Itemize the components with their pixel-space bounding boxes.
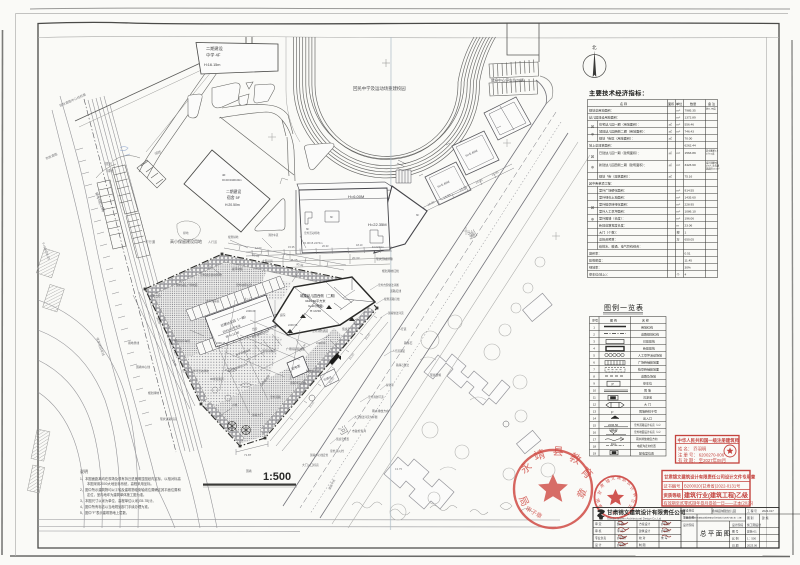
svg-text:规划道路红线: 规划道路红线 <box>384 297 400 301</box>
svg-text:1、本图面距离均在现场及现有拆迁进度明显图纸内定标，以相对标: 1、本图面距离均在现场及现有拆迁进度明显图纸内定标，以相对标高 <box>80 476 181 481</box>
svg-text:有 效 期： 至2027年08月: 有 效 期： 至2027年08月 <box>678 457 726 464</box>
svg-text:围 墙: 围 墙 <box>644 388 651 393</box>
svg-text:总投资预算：: 总投资预算： <box>599 237 618 242</box>
svg-text:停车位: 停车位 <box>643 381 652 386</box>
svg-text:室外道路: 室外道路 <box>270 395 281 399</box>
svg-text:广场砖铺装地面: 广场砖铺装地面 <box>286 347 305 351</box>
svg-text:30米直跑道: 30米直跑道 <box>210 377 224 381</box>
svg-text:20.33: 20.33 <box>352 256 360 260</box>
svg-text:F=2234m: F=2234m <box>372 245 385 249</box>
svg-text:名 称: 名 称 <box>642 318 649 323</box>
svg-text:值班室位置: 值班室位置 <box>336 437 349 441</box>
svg-text:B200020(甘肃省)2022-0131号: B200020(甘肃省)2022-0131号 <box>684 483 740 490</box>
svg-text:2296.58: 2296.58 <box>288 323 298 327</box>
svg-text:m²: m² <box>677 123 681 127</box>
svg-text:m²: m² <box>677 217 681 221</box>
svg-text:数量: 数量 <box>690 101 696 106</box>
svg-text:名 称: 名 称 <box>620 101 627 106</box>
svg-text:围墙大门: 围墙大门 <box>252 413 263 417</box>
svg-text:樘: 樘 <box>677 230 680 235</box>
svg-text:现状建筑: 现状建筑 <box>430 373 441 377</box>
svg-text:配电室位置: 配电室位置 <box>639 451 654 456</box>
svg-text:196.06: 196.06 <box>685 217 695 221</box>
svg-text:新建幼儿园西侧二期（建筑面积）：: 新建幼儿园西侧二期（建筑面积）： <box>599 162 647 167</box>
svg-text:室外活动场地: 室外活动场地 <box>304 231 320 235</box>
svg-text:个: 个 <box>677 273 680 277</box>
svg-text:住宅幼儿园一期（用地面积）：: 住宅幼儿园一期（用地面积）： <box>599 122 641 127</box>
svg-text:H:16.15m: H:16.15m <box>204 63 220 67</box>
svg-text:资质等级: 资质等级 <box>664 492 682 499</box>
svg-text:4: 4 <box>685 273 687 277</box>
svg-text:14: 14 <box>593 417 597 421</box>
svg-text:庭院: 庭院 <box>280 313 286 317</box>
svg-text:化粪池位置: 化粪池位置 <box>306 369 320 373</box>
svg-text:m²: m² <box>677 163 681 167</box>
svg-text:建设单位: 建设单位 <box>683 509 694 513</box>
svg-text:规划「街（建筑面积）：: 规划「街（建筑面积）： <box>599 174 631 179</box>
svg-text:植草砖铺装地面: 植草砖铺装地面 <box>638 367 659 372</box>
svg-text:用地界线: 用地界线 <box>128 341 139 345</box>
svg-text:规划「街区（用地面积）：: 规划「街区（用地面积）： <box>599 136 635 141</box>
svg-text:2、图中所示建筑物均以②轴及建筑物临街轴线位置确定其平面位置: 2、图中所示建筑物均以②轴及建筑物临街轴线位置确定其平面位置和 <box>80 487 181 492</box>
svg-text:本图采用2000大地坐标系统，高程采用坐标。: 本图采用2000大地坐标系统，高程采用坐标。 <box>87 481 154 486</box>
svg-text:3423.60: 3423.60 <box>685 163 696 167</box>
svg-text:消防车道: 消防车道 <box>268 233 279 237</box>
svg-text:70.00: 70.00 <box>685 137 693 141</box>
svg-text:DLG: DLG <box>611 442 616 446</box>
svg-text:15: 15 <box>593 424 597 428</box>
svg-text:4F: 4F <box>222 173 226 177</box>
svg-text:北: 北 <box>592 44 597 51</box>
svg-text:方案设计: 方案设计 <box>639 522 650 526</box>
svg-text:1563.89: 1563.89 <box>685 151 696 155</box>
svg-text:序号: 序号 <box>592 318 598 323</box>
svg-text:室外道路设计标高（m）: 室外道路设计标高（m） <box>634 423 662 427</box>
svg-text:室外围墙（长度）：: 室外围墙（长度）： <box>599 216 625 221</box>
svg-text:3+1F(局部): 3+1F(局部) <box>308 303 323 308</box>
svg-text:6F: 6F <box>416 213 420 217</box>
svg-text:15.35: 15.35 <box>288 245 295 249</box>
svg-text:规划: 规划 <box>105 161 112 166</box>
svg-text:甘肃锦文建筑设计有限责任公司设计文件专用章: 甘肃锦文建筑设计有限责任公司设计文件专用章 <box>664 474 756 481</box>
svg-text:图 别: 图 别 <box>747 516 754 520</box>
svg-text:给排水、暖通、电气管线综合：: 给排水、暖通、电气管线综合： <box>599 244 642 249</box>
svg-text:m: m <box>677 224 680 228</box>
svg-text:1086.10: 1086.10 <box>685 210 696 214</box>
svg-text:设 计: 设 计 <box>595 543 602 547</box>
svg-text:H=22.35M: H=22.35M <box>368 222 387 227</box>
svg-text:1435.60: 1435.60 <box>685 196 696 200</box>
svg-text:绿地: 绿地 <box>183 231 189 235</box>
svg-text:施工图设计: 施工图设计 <box>747 523 761 527</box>
svg-text:2296.60: 2296.60 <box>246 309 256 313</box>
svg-text:19: 19 <box>593 452 597 456</box>
svg-text:停车位(地上)：: 停车位(地上)： <box>589 272 610 277</box>
svg-text:比 例: 比 例 <box>732 537 739 541</box>
svg-text:审 定: 审 定 <box>595 522 602 526</box>
svg-text:甘肃锦文建筑设计有限责任公司: 甘肃锦文建筑设计有限责任公司 <box>607 509 686 517</box>
svg-text:H:13.50: H:13.50 <box>310 309 321 313</box>
svg-text:18.10: 18.10 <box>356 243 363 247</box>
svg-text:植草砖停车位: 植草砖停车位 <box>174 339 190 343</box>
svg-text:中学 4F: 中学 4F <box>206 52 221 59</box>
svg-text:室外台阶: 室外台阶 <box>150 294 161 298</box>
svg-text:71.87: 71.87 <box>244 453 252 457</box>
svg-text:m²: m² <box>677 189 681 193</box>
svg-text:室外植草砖绿化面积：: 室外植草砖绿化面积： <box>599 202 630 207</box>
svg-text:绿地率：: 绿地率： <box>589 265 601 270</box>
svg-text:雨水排放方向: 雨水排放方向 <box>372 409 389 413</box>
svg-text:围墙详见大样: 围墙详见大样 <box>290 381 306 385</box>
svg-text:主入口: 主入口 <box>244 297 252 301</box>
svg-text:道路红线: 道路红线 <box>390 289 401 293</box>
svg-text:绿化带: 绿化带 <box>386 383 394 387</box>
svg-text:万: 万 <box>677 238 680 242</box>
svg-text:17: 17 <box>593 438 597 442</box>
svg-text:地上总建筑面积：: 地上总建筑面积： <box>589 143 614 148</box>
svg-text:设计阶段: 设计阶段 <box>732 523 743 527</box>
svg-text:±0.00=1900.00m: ±0.00=1900.00m <box>222 178 242 182</box>
svg-text:大门入口标高: 大门入口标高 <box>302 463 319 467</box>
svg-text:用地红线: 用地红线 <box>641 325 653 330</box>
svg-text:有效期至贰零贰捌年叁月叁拾一日——正本(2025): 有效期至贰零贰捌年叁月叁拾一日——正本(2025) <box>664 500 754 506</box>
svg-text:图 例: 图 例 <box>610 318 617 323</box>
svg-text:建筑设计: 建筑设计 <box>639 529 650 533</box>
svg-text:审 核: 审 核 <box>595 529 602 533</box>
svg-text:围墙做法详见: 围墙做法详见 <box>388 311 404 315</box>
svg-text:m²: m² <box>677 109 681 113</box>
svg-text:制 图: 制 图 <box>639 543 646 547</box>
svg-text:1372.89: 1372.89 <box>685 116 696 120</box>
svg-text:二期建设: 二期建设 <box>206 45 224 52</box>
svg-text:幼儿园建设用地面积：: 幼儿园建设用地面积： <box>589 115 620 120</box>
svg-text:现状道路标高: 现状道路标高 <box>160 417 177 421</box>
svg-text:5、图中"F"表示建筑物地上层数。: 5、图中"F"表示建筑物地上层数。 <box>80 510 129 515</box>
svg-text:值班室: 值班室 <box>342 327 350 331</box>
svg-text:县: 县 <box>552 445 564 459</box>
svg-text:围墙中心线: 围墙中心线 <box>136 365 150 369</box>
svg-text:人行道铺装: 人行道铺装 <box>392 349 405 353</box>
svg-text:围墙砖柱子号: 围墙砖柱子号 <box>639 409 657 414</box>
svg-text:H=6.00M: H=6.00M <box>348 194 364 199</box>
svg-text:6F: 6F <box>306 227 310 231</box>
svg-text:大 门: 大 门 <box>644 402 651 407</box>
svg-text:中: 中 <box>591 165 594 170</box>
svg-text:其: 其 <box>591 206 594 210</box>
svg-text:单位: 单位 <box>676 101 682 106</box>
svg-text:路缘石: 路缘石 <box>404 341 413 345</box>
svg-text:16: 16 <box>593 431 597 435</box>
svg-text:规划绿地: 规划绿地 <box>148 391 159 395</box>
svg-text:4、图中所有标志以当地规划部门手续办理为准。: 4、图中所有标志以当地规划部门手续办理为准。 <box>80 504 151 509</box>
svg-text:建筑行业(建筑工程)乙级: 建筑行业(建筑工程)乙级 <box>684 492 748 500</box>
svg-text:H:20.50m: H:20.50m <box>225 203 240 207</box>
svg-text:现状围墙拆除: 现状围墙拆除 <box>376 257 393 261</box>
svg-text:绿地铺装广场地面: 绿地铺装广场地面 <box>176 283 198 287</box>
svg-text:室外消防环道: 室外消防环道 <box>368 395 384 399</box>
svg-text:228.95: 228.95 <box>685 203 695 207</box>
svg-text:容积率：: 容积率： <box>589 251 601 256</box>
svg-text:13: 13 <box>593 410 597 414</box>
svg-text:证书编号: 证书编号 <box>664 483 681 490</box>
svg-text:回民中学及运动场重建校园: 回民中学及运动场重建校园 <box>353 85 406 92</box>
svg-text:12: 12 <box>593 403 597 407</box>
svg-text:室外人工草坪活动场地: 室外人工草坪活动场地 <box>182 369 209 373</box>
svg-text:11.45: 11.45 <box>685 259 693 263</box>
svg-text:围墙中心线定位: 围墙中心线定位 <box>310 453 329 457</box>
svg-text:建施-01: 建施-01 <box>747 530 757 534</box>
svg-text:650.05: 650.05 <box>685 238 695 242</box>
svg-text:主要技术经济指标：: 主要技术经济指标： <box>589 90 648 98</box>
svg-text:中: 中 <box>591 217 594 222</box>
svg-text:建 施: 建 施 <box>762 516 769 520</box>
svg-text:朱 军: 朱 军 <box>661 536 668 540</box>
svg-text:设计阶段: 设计阶段 <box>683 523 694 527</box>
svg-text:10: 10 <box>593 389 597 393</box>
svg-text:其: 其 <box>591 155 594 159</box>
svg-text:1:500: 1:500 <box>263 471 291 483</box>
svg-text:7985.35: 7985.35 <box>685 109 696 113</box>
svg-text:定位，室内地坪为建筑单体施工图为准。: 定位，室内地坪为建筑单体施工图为准。 <box>87 492 146 497</box>
svg-text:室外健身器材场地: 室外健身器材场地 <box>200 273 222 277</box>
svg-text:车行道: 车行道 <box>145 239 156 244</box>
svg-text:新建道路宽度长度：: 新建道路宽度长度： <box>599 223 627 228</box>
svg-text:室外地坪标高: 室外地坪标高 <box>236 283 252 287</box>
svg-text:13.75: 13.75 <box>395 467 402 471</box>
svg-text:室外广场硬化面积：: 室外广场硬化面积： <box>599 188 627 193</box>
svg-text:围墙: 围墙 <box>246 469 252 473</box>
svg-text:18: 18 <box>593 445 597 449</box>
svg-text:m²: m² <box>677 130 681 134</box>
svg-text:2023.06: 2023.06 <box>747 544 758 548</box>
svg-text:20.33: 20.33 <box>322 244 329 248</box>
svg-text:m²: m² <box>677 203 681 207</box>
svg-text:0.51: 0.51 <box>685 252 691 256</box>
svg-text:室外绿化土地面积：: 室外绿化土地面积： <box>599 195 627 200</box>
svg-text:大门做法详见大样图: 大门做法详见大样图 <box>354 415 378 419</box>
svg-text:健身中心停车位20辆: 健身中心停车位20辆 <box>491 78 524 83</box>
svg-text:人行道: 人行道 <box>208 239 217 244</box>
svg-text:建筑密度：: 建筑密度： <box>589 258 604 263</box>
svg-text:城建幼儿园西侧（二期）: 城建幼儿园西侧（二期） <box>300 293 337 298</box>
svg-text:姓 名： 乔羽明: 姓 名： 乔羽明 <box>678 446 706 453</box>
svg-text:规划总用地面积：: 规划总用地面积： <box>589 108 614 113</box>
svg-text:914.55: 914.55 <box>685 189 695 193</box>
svg-text:电缆沟走向位置: 电缆沟走向位置 <box>637 444 656 448</box>
svg-text:台阶: 台阶 <box>252 327 258 331</box>
svg-text:3423.60平方米: 3423.60平方米 <box>305 298 325 303</box>
svg-text:556.46: 556.46 <box>685 123 695 127</box>
svg-text:二期建设: 二期建设 <box>226 189 241 194</box>
svg-text:无障碍坡道: 无障碍坡道 <box>262 349 276 353</box>
svg-text:宿舍 5F: 宿舍 5F <box>227 195 241 200</box>
svg-text:道路及场地: 道路及场地 <box>641 374 656 379</box>
svg-text:人行道: 人行道 <box>398 327 407 331</box>
svg-text:总平面图: 总平面图 <box>700 529 732 538</box>
svg-text:室外台阶做法详图: 室外台阶做法详图 <box>378 283 399 287</box>
svg-text:规划用地红线: 规划用地红线 <box>382 269 399 273</box>
svg-text:11: 11 <box>593 396 596 400</box>
svg-text:嵌草砖铺装: 嵌草砖铺装 <box>206 299 220 303</box>
svg-text:m²: m² <box>677 210 681 214</box>
svg-text:其: 其 <box>591 125 594 129</box>
svg-text:雨水排放坡度方向: 雨水排放坡度方向 <box>636 437 658 441</box>
svg-text:说明: 说明 <box>80 468 88 474</box>
svg-text:图 号: 图 号 <box>732 530 739 534</box>
svg-text:2296.45: 2296.45 <box>216 341 226 345</box>
svg-text:3、本图尺寸以米为单位，高程单位以米(G5-78)计。: 3、本图尺寸以米为单位，高程单位以米(G5-78)计。 <box>80 498 156 503</box>
svg-text:m²: m² <box>677 116 681 120</box>
svg-text:城建幼儿园西侧二期（用地面积）：: 城建幼儿园西侧二期（用地面积）： <box>599 129 647 134</box>
svg-text:2296.56: 2296.56 <box>608 423 619 427</box>
svg-text:其中各单项工程：: 其中各单项工程： <box>589 181 614 186</box>
svg-text:1: 1 <box>685 231 687 235</box>
svg-text:±0.00=8.2476m: ±0.00=8.2476m <box>303 241 323 245</box>
svg-text:大型玩具: 大型玩具 <box>262 259 273 263</box>
svg-text:室外地面设计标高（m）: 室外地面设计标高（m） <box>634 430 662 434</box>
svg-text:30%: 30% <box>685 266 691 270</box>
svg-text:m²: m² <box>677 196 681 200</box>
svg-text:校 对: 校 对 <box>639 536 646 540</box>
svg-text:人工草坪活动场地: 人工草坪活动场地 <box>638 353 662 358</box>
svg-text:已建建筑: 已建建筑 <box>643 339 655 344</box>
svg-text:广场砖铺装地面: 广场砖铺装地面 <box>638 360 659 365</box>
svg-text:中华人民共和国一级注册建筑师: 中华人民共和国一级注册建筑师 <box>678 437 740 444</box>
svg-text:室外消防通道: 室外消防通道 <box>312 329 328 333</box>
svg-text:大门（个数）：: 大门（个数）： <box>599 230 619 235</box>
svg-text:工 程 号: 工 程 号 <box>747 509 757 513</box>
svg-text:专业负责: 专业负责 <box>595 536 606 540</box>
svg-text:12.00: 12.00 <box>255 246 262 250</box>
svg-text:746.43: 746.43 <box>685 130 695 134</box>
svg-text:路缘石做法: 路缘石做法 <box>396 363 409 367</box>
svg-text:市政检查井: 市政检查井 <box>352 429 366 433</box>
svg-text:已建幼儿园一期（建筑面积）：: 已建幼儿园一期（建筑面积）： <box>599 150 641 155</box>
svg-text:高小保留建设用地: 高小保留建设用地 <box>170 238 202 244</box>
svg-text:悬浮地板: 悬浮地板 <box>232 267 243 271</box>
svg-text:永靖县城建幼儿园: 永靖县城建幼儿园 <box>712 508 736 513</box>
svg-text:新建建筑: 新建建筑 <box>643 346 655 351</box>
svg-text:日 期: 日 期 <box>732 544 739 548</box>
svg-text:面积: 面积 <box>668 101 674 106</box>
svg-text:绿地: 绿地 <box>107 168 114 173</box>
svg-text:GanSu JinWen Architectural Des: GanSu JinWen Architectural Design Co.,Lt… <box>607 517 662 521</box>
svg-text:室外消火栓: 室外消火栓 <box>330 449 344 453</box>
svg-text:室外人工草坪面积：: 室外人工草坪面积： <box>599 209 627 214</box>
svg-text:图例一览表: 图例一览表 <box>604 303 644 312</box>
svg-text:规划绿地: 规划绿地 <box>228 235 239 239</box>
svg-text:1：500: 1：500 <box>747 537 756 541</box>
svg-text:出入口: 出入口 <box>643 416 652 421</box>
svg-text:中: 中 <box>591 132 594 137</box>
svg-text:沉淀池: 沉淀池 <box>643 395 652 400</box>
svg-text:2296.50: 2296.50 <box>316 341 326 345</box>
svg-text:2023-017: 2023-017 <box>762 509 774 513</box>
svg-text:备 注: 备 注 <box>708 101 715 106</box>
svg-text:6F: 6F <box>330 215 334 219</box>
svg-text:75.16: 75.16 <box>685 175 693 179</box>
svg-text:23.06: 23.06 <box>685 224 693 228</box>
svg-text:道路规划红线: 道路规划红线 <box>641 332 659 337</box>
svg-text:2296.50: 2296.50 <box>609 428 618 431</box>
svg-text:沙坑: 沙坑 <box>232 403 238 407</box>
svg-text:m²: m² <box>677 151 681 155</box>
svg-text:6262.44: 6262.44 <box>685 144 696 148</box>
